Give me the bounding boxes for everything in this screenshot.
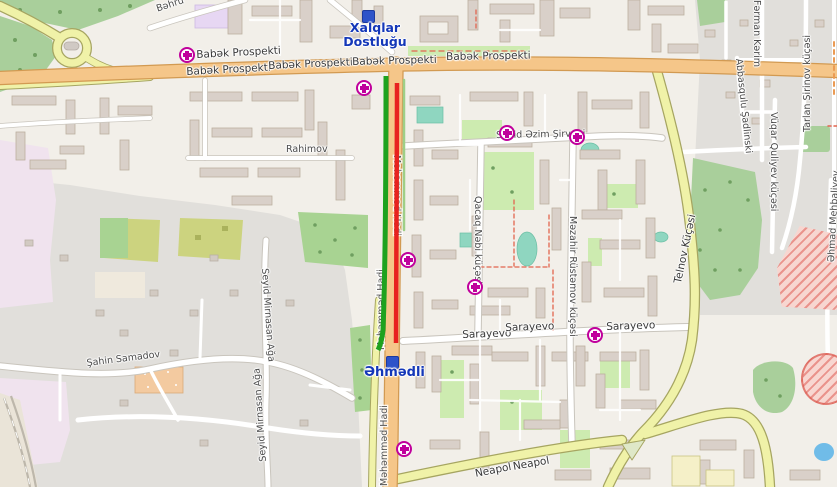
hospital-icon [179,47,195,63]
map-canvas[interactable]: Məhəmməd Hadi Məhəmməd Hadi Məhəmməd Had… [0,0,837,487]
metro-label-ahmadli: Əhmədli [364,366,425,381]
hospital-icon [569,129,585,145]
hospital-icon [396,441,412,457]
hospital-icon [499,125,515,141]
map-tiles: Məhəmməd Hadi Məhəmməd Hadi Məhəmməd Had… [0,0,837,487]
street-label-mahammad-hadi-3: Məhəmməd Hadi [379,405,390,486]
metro-label-xalqlar: Xalqlar Dostluğu [338,21,412,49]
hospital-icon [467,279,483,295]
hospital-icon [356,80,372,96]
hospital-icon [587,327,603,343]
route-line-red [396,83,397,343]
hospital-icon [400,252,416,268]
